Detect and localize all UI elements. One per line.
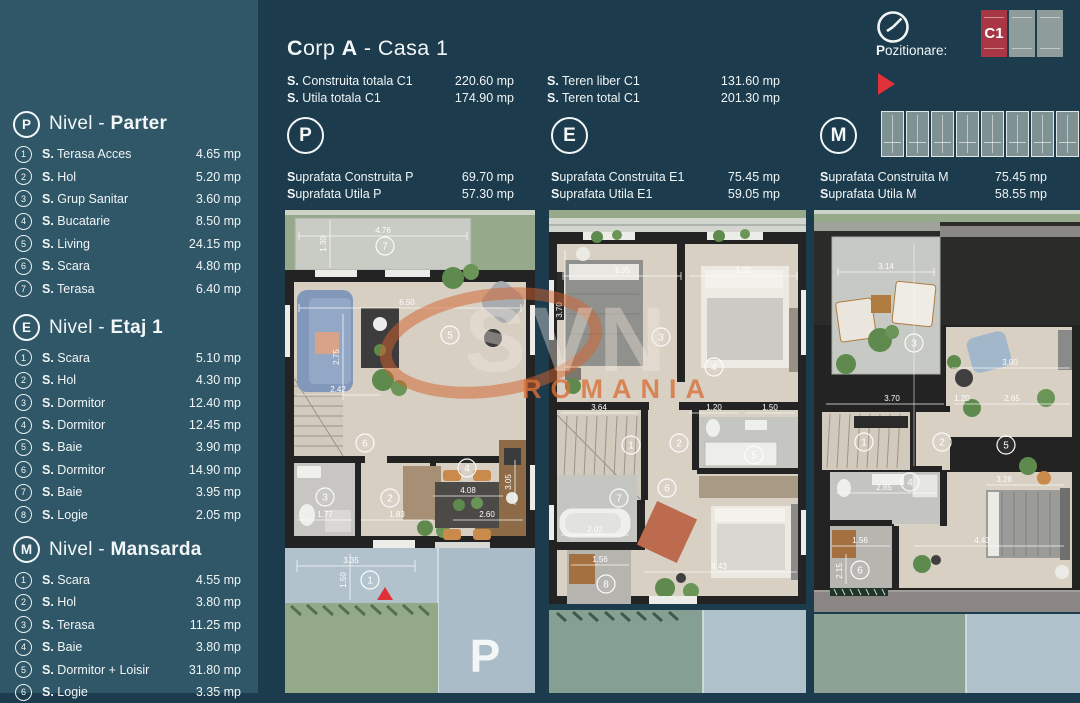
- unit-tag: C1: [981, 10, 1007, 57]
- room-number-icon: 3: [15, 616, 32, 633]
- summary-label: Suprafata Construita E1: [551, 169, 684, 186]
- summary-row: Suprafata Utila E159.05 mp: [551, 186, 780, 203]
- summary-value: 69.70 mp: [462, 169, 514, 186]
- position-arrow-icon: [878, 73, 895, 95]
- summary-value: 58.55 mp: [995, 186, 1047, 203]
- level-header-etaj: ESuprafata Construita E175.45 mpSuprafat…: [551, 117, 780, 154]
- area-row: 4S. Baie3.80 mp: [0, 636, 258, 658]
- room-number: 2: [939, 437, 945, 448]
- area-row: 6S. Dormitor14.90 mp: [0, 459, 258, 481]
- room-number-icon: 4: [15, 417, 32, 434]
- area-value: 3.80 mp: [196, 640, 241, 654]
- area-value: 3.80 mp: [196, 595, 241, 609]
- room-number: 7: [616, 493, 622, 504]
- level-title: Nivel - Etaj 1: [49, 317, 163, 339]
- area-row: 2S. Hol3.80 mp: [0, 591, 258, 613]
- sidebar-section-E: ENivel - Etaj 11S. Scara5.10 mp2S. Hol4.…: [0, 314, 258, 526]
- room-number-icon: 4: [15, 639, 32, 656]
- dim-label: 4.43: [711, 562, 727, 571]
- area-row: 4S. Dormitor12.45 mp: [0, 414, 258, 436]
- area-value: 5.20 mp: [196, 170, 241, 184]
- level-title-prefix: Nivel -: [49, 539, 111, 560]
- level-summary: Suprafata Construita E175.45 mpSuprafata…: [551, 169, 780, 202]
- total-value: 131.60 mp: [721, 73, 780, 90]
- summary-value: 75.45 mp: [728, 169, 780, 186]
- area-label: S. Terasa: [42, 618, 190, 632]
- dim-label: 2.60: [479, 510, 495, 519]
- dim-label: 1.77: [317, 510, 333, 519]
- area-value: 8.50 mp: [196, 214, 241, 228]
- area-row: 3S. Terasa11.25 mp: [0, 614, 258, 636]
- level-letter-icon: E: [13, 314, 40, 341]
- area-label: S. Baie: [42, 485, 196, 499]
- room-number: 5: [1003, 440, 1009, 451]
- room-number: 5: [751, 450, 757, 461]
- dim-label: 3.35: [614, 266, 630, 275]
- room-number: 1: [367, 575, 373, 586]
- dim-label: 2.15: [835, 563, 844, 579]
- total-label: S. Utila totala C1: [287, 90, 381, 107]
- room-number-icon: 7: [15, 484, 32, 501]
- level-header-parter: PSuprafata Construita P69.70 mpSuprafata…: [287, 117, 514, 154]
- level-title: Nivel - Parter: [49, 113, 167, 135]
- level-letter-badge: M: [820, 117, 857, 154]
- room-number-icon: 5: [15, 439, 32, 456]
- area-value: 24.15 mp: [189, 237, 241, 251]
- summary-label: Suprafata Construita M: [820, 169, 949, 186]
- level-title-name: Mansarda: [111, 539, 202, 560]
- dim-label: 1.50: [339, 572, 348, 588]
- room-number: 8: [603, 579, 609, 590]
- total-label: S. Teren liber C1: [547, 73, 640, 90]
- room-number-icon: 2: [15, 168, 32, 185]
- room-number: 3: [658, 332, 664, 343]
- dim-label: 4.08: [460, 486, 476, 495]
- area-label: S. Hol: [42, 595, 196, 609]
- dim-label: 2.42: [330, 385, 346, 394]
- summary-label: Suprafata Construita P: [287, 169, 413, 186]
- room-number-icon: 2: [15, 594, 32, 611]
- area-label: S. Bucatarie: [42, 214, 196, 228]
- level-header-mansarda: MSuprafata Construita M75.45 mpSuprafata…: [820, 117, 1047, 154]
- room-number: 2: [387, 493, 393, 504]
- unit-tile: [1009, 10, 1035, 57]
- level-title-prefix: Nivel -: [49, 317, 111, 338]
- floor-plan-mansarda: 3.143.002.653.701.202.853.284.431.562.15…: [814, 210, 1080, 693]
- pozitionare-label: Pozitionare:: [876, 43, 947, 58]
- sidebar-section-P: PNivel - Parter1S. Terasa Acces4.65 mp2S…: [0, 110, 258, 300]
- area-row: 3S. Dormitor12.40 mp: [0, 392, 258, 414]
- totals-column-2: S. Teren liber C1131.60 mpS. Teren total…: [547, 73, 780, 106]
- dim-label: 3.70: [884, 394, 900, 403]
- area-label: S. Baie: [42, 640, 196, 654]
- room-number-icon: 4: [15, 213, 32, 230]
- area-label: S. Dormitor: [42, 396, 189, 410]
- area-list: 1S. Terasa Acces4.65 mp2S. Hol5.20 mp3S.…: [0, 143, 258, 300]
- room-number-icon: 5: [15, 661, 32, 678]
- dim-label: 2.02: [587, 525, 603, 534]
- summary-row: Suprafata Construita M75.45 mp: [820, 169, 1047, 186]
- dim-label: 1.20: [954, 394, 970, 403]
- room-number: 3: [911, 338, 917, 349]
- area-row: 5S. Baie3.90 mp: [0, 436, 258, 458]
- room-number-icon: 7: [15, 280, 32, 297]
- title-segment: orp: [303, 36, 342, 60]
- area-label: S. Scara: [42, 259, 196, 273]
- unit-tile: C1: [981, 10, 1007, 57]
- level-summary: Suprafata Construita P69.70 mpSuprafata …: [287, 169, 514, 202]
- area-row: 6S. Scara4.80 mp: [0, 255, 258, 277]
- area-value: 12.40 mp: [189, 396, 241, 410]
- room-number: 7: [382, 241, 388, 252]
- room-number-icon: 6: [15, 461, 32, 478]
- area-value: 3.95 mp: [196, 485, 241, 499]
- level-letter-icon: M: [13, 536, 40, 563]
- area-row: 1S. Scara5.10 mp: [0, 347, 258, 369]
- sidebar: PNivel - Parter1S. Terasa Acces4.65 mp2S…: [0, 0, 258, 693]
- room-number: 4: [464, 463, 470, 474]
- area-label: S. Living: [42, 237, 189, 251]
- floor-plan-etaj1: 3.353.003.703.641.201.502.024.431.563412…: [549, 210, 806, 693]
- area-row: 4S. Bucatarie8.50 mp: [0, 210, 258, 232]
- area-row: 6S. Logie3.35 mp: [0, 681, 258, 703]
- level-title-prefix: Nivel -: [49, 113, 111, 134]
- level-heading: PNivel - Parter: [0, 110, 258, 138]
- area-row: 7S. Baie3.95 mp: [0, 481, 258, 503]
- room-number: 6: [362, 438, 368, 449]
- title-segment: C: [287, 36, 303, 60]
- unit-tile: [1037, 10, 1063, 57]
- area-value: 3.90 mp: [196, 440, 241, 454]
- area-value: 11.25 mp: [190, 618, 241, 632]
- area-row: 2S. Hol4.30 mp: [0, 369, 258, 391]
- dim-label: 2.65: [1004, 394, 1020, 403]
- summary-row: Suprafata Construita E175.45 mp: [551, 169, 780, 186]
- area-value: 6.40 mp: [196, 282, 241, 296]
- room-number-icon: 2: [15, 372, 32, 389]
- summary-value: 59.05 mp: [728, 186, 780, 203]
- area-label: S. Baie: [42, 440, 196, 454]
- area-label: S. Dormitor + Loisir: [42, 663, 189, 677]
- total-value: 174.90 mp: [455, 90, 514, 107]
- area-value: 4.80 mp: [196, 259, 241, 273]
- summary-label: Suprafata Utila M: [820, 186, 917, 203]
- total-label: S. Teren total C1: [547, 90, 640, 107]
- room-number-icon: 3: [15, 190, 32, 207]
- room-number: 1: [861, 437, 867, 448]
- title-segment: A: [342, 36, 358, 60]
- dim-label: 3.64: [591, 403, 607, 412]
- total-value: 220.60 mp: [455, 73, 514, 90]
- room-number-icon: 5: [15, 235, 32, 252]
- level-letter-badge: P: [287, 117, 324, 154]
- area-value: 12.45 mp: [189, 418, 241, 432]
- area-label: S. Hol: [42, 373, 196, 387]
- area-value: 4.65 mp: [196, 147, 241, 161]
- unit-position-tiles: C1: [981, 10, 1063, 57]
- dim-label: 3.00: [1002, 358, 1018, 367]
- area-value: 31.80 mp: [189, 663, 241, 677]
- room-number: 1: [628, 440, 634, 451]
- level-summary: Suprafata Construita M75.45 mpSuprafata …: [820, 169, 1047, 202]
- area-label: S. Scara: [42, 573, 196, 587]
- total-row: S. Construita totala C1220.60 mp: [287, 73, 514, 90]
- level-title-name: Etaj 1: [111, 317, 164, 338]
- room-number-icon: 1: [15, 146, 32, 163]
- dim-label: 3.05: [504, 474, 513, 490]
- dim-label: 4.43: [974, 536, 990, 545]
- page-title: Corp A - Casa 1: [287, 36, 448, 61]
- total-value: 201.30 mp: [721, 90, 780, 107]
- dim-label: 3.14: [878, 262, 894, 271]
- room-number: 3: [322, 492, 328, 503]
- title-segment: - Casa 1: [358, 36, 449, 60]
- room-number-icon: 8: [15, 506, 32, 523]
- area-label: S. Grup Sanitar: [42, 192, 196, 206]
- plan-letter-marker: P: [470, 630, 501, 682]
- summary-label: Suprafata Utila P: [287, 186, 382, 203]
- summary-label: Suprafata Utila E1: [551, 186, 652, 203]
- dim-label: 1.56: [852, 536, 868, 545]
- area-row: 1S. Terasa Acces4.65 mp: [0, 143, 258, 165]
- dim-label: 2.85: [876, 483, 892, 492]
- summary-value: 75.45 mp: [995, 169, 1047, 186]
- level-title-name: Parter: [111, 113, 168, 134]
- level-letter-badge: E: [551, 117, 588, 154]
- level-heading: ENivel - Etaj 1: [0, 314, 258, 342]
- summary-row: Suprafata Utila M58.55 mp: [820, 186, 1047, 203]
- dim-label: 1.50: [762, 403, 778, 412]
- area-row: 7S. Terasa6.40 mp: [0, 277, 258, 299]
- dim-label: 1.30: [319, 236, 328, 252]
- sidebar-section-M: MNivel - Mansarda1S. Scara4.55 mp2S. Hol…: [0, 536, 258, 703]
- dim-label: 2.75: [332, 349, 341, 365]
- area-value: 3.60 mp: [196, 192, 241, 206]
- totals-column-1: S. Construita totala C1220.60 mpS. Utila…: [287, 73, 514, 106]
- area-value: 14.90 mp: [189, 463, 241, 477]
- total-row: S. Teren liber C1131.60 mp: [547, 73, 780, 90]
- room-number: 6: [857, 565, 863, 576]
- area-label: S. Logie: [42, 685, 196, 699]
- area-label: S. Dormitor: [42, 463, 189, 477]
- area-value: 4.55 mp: [196, 573, 241, 587]
- area-label: S. Logie: [42, 508, 196, 522]
- dim-label: 3.70: [555, 302, 564, 318]
- area-row: 8S. Logie2.05 mp: [0, 503, 258, 525]
- area-row: 5S. Dormitor + Loisir31.80 mp: [0, 658, 258, 680]
- dim-label: 3.28: [996, 475, 1012, 484]
- dim-label: 1.83: [389, 510, 405, 519]
- room-number-icon: 6: [15, 258, 32, 275]
- area-list: 1S. Scara5.10 mp2S. Hol4.30 mp3S. Dormit…: [0, 347, 258, 526]
- area-list: 1S. Scara4.55 mp2S. Hol3.80 mp3S. Terasa…: [0, 569, 258, 703]
- total-row: S. Utila totala C1174.90 mp: [287, 90, 514, 107]
- area-label: S. Dormitor: [42, 418, 189, 432]
- level-title: Nivel - Mansarda: [49, 539, 202, 561]
- area-row: 3S. Grup Sanitar3.60 mp: [0, 188, 258, 210]
- area-value: 5.10 mp: [196, 351, 241, 365]
- room-number-icon: 6: [15, 684, 32, 701]
- dim-label: 6.50: [399, 298, 415, 307]
- site-plan-tile: [1056, 111, 1079, 157]
- floorplan-sheet: PNivel - Parter1S. Terasa Acces4.65 mp2S…: [0, 0, 1080, 693]
- room-number: 6: [664, 483, 670, 494]
- level-letter-icon: P: [13, 111, 40, 138]
- dim-label: 3.35: [343, 556, 359, 565]
- dim-label: 1.20: [706, 403, 722, 412]
- area-label: S. Scara: [42, 351, 196, 365]
- dim-label: 1.56: [592, 555, 608, 564]
- room-number-icon: 1: [15, 572, 32, 589]
- area-label: S. Hol: [42, 170, 196, 184]
- room-number-icon: 1: [15, 349, 32, 366]
- area-row: 5S. Living24.15 mp: [0, 233, 258, 255]
- summary-value: 57.30 mp: [462, 186, 514, 203]
- room-number: 5: [447, 330, 453, 341]
- room-number: 4: [711, 362, 717, 373]
- area-label: S. Terasa: [42, 282, 196, 296]
- area-label: S. Terasa Acces: [42, 147, 196, 161]
- area-row: 2S. Hol5.20 mp: [0, 165, 258, 187]
- area-row: 1S. Scara4.55 mp: [0, 569, 258, 591]
- level-heading: MNivel - Mansarda: [0, 536, 258, 564]
- floor-plan-parter: 4.761.306.502.752.424.081.771.832.603.05…: [285, 210, 535, 693]
- dim-label: 3.00: [735, 266, 751, 275]
- dim-label: 4.76: [375, 226, 391, 235]
- summary-row: Suprafata Construita P69.70 mp: [287, 169, 514, 186]
- area-value: 4.30 mp: [196, 373, 241, 387]
- room-number: 2: [676, 438, 682, 449]
- total-row: S. Teren total C1201.30 mp: [547, 90, 780, 107]
- area-value: 3.35 mp: [196, 685, 241, 699]
- summary-row: Suprafata Utila P57.30 mp: [287, 186, 514, 203]
- room-number-icon: 3: [15, 394, 32, 411]
- room-number: 4: [907, 477, 913, 488]
- area-value: 2.05 mp: [196, 508, 241, 522]
- total-label: S. Construita totala C1: [287, 73, 413, 90]
